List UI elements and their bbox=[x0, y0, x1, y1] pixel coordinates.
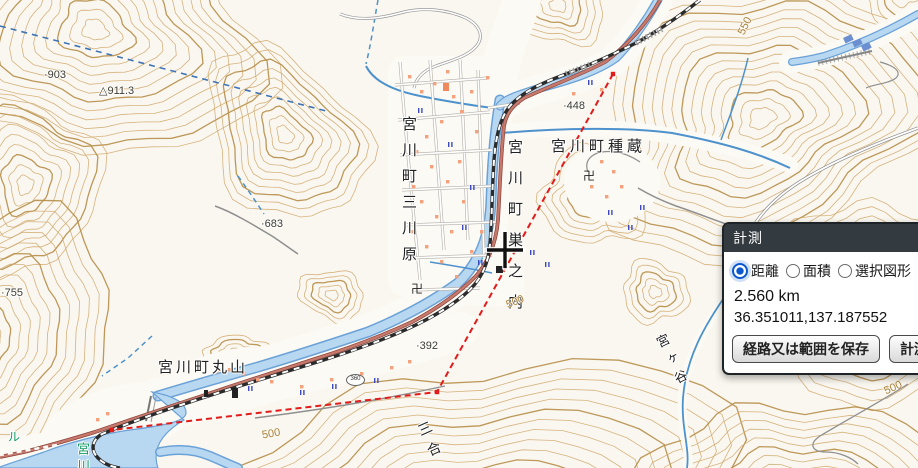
elevation-755: ·755 bbox=[1, 287, 23, 299]
elevation-392: ·392 bbox=[416, 340, 438, 352]
label-tunnel-name-fragment: ル bbox=[8, 431, 20, 443]
label-miyakawa-river: 宮川 bbox=[76, 442, 89, 468]
center-coordinates: 36.351011,137.187552 bbox=[734, 309, 918, 326]
radio-selected-shape-icon[interactable] bbox=[838, 264, 852, 278]
save-route-button[interactable]: 経路又は範囲を保存 bbox=[732, 335, 880, 363]
mode-distance[interactable]: 距離 bbox=[732, 261, 779, 281]
panel-title: 計測 bbox=[724, 224, 918, 252]
measured-distance-value: 2.560 km bbox=[734, 288, 918, 306]
temple-icon: 卍 bbox=[411, 280, 423, 297]
elevation-448: ·448 bbox=[563, 100, 585, 112]
mode-selected-shape-label: 選択図形 bbox=[855, 261, 911, 281]
measurement-panel: 計測 距離 面積 選択図形 2.56 bbox=[722, 222, 918, 375]
label-maruyama: 宮川町丸山 bbox=[158, 360, 248, 375]
map-application: 宮川町三川原 宮川町巣之内 宮川町種蔵 宮川町丸山 宮ヶ谷 三合 宮川 ル ·9… bbox=[0, 0, 918, 468]
mode-area-label: 面積 bbox=[803, 261, 831, 281]
mode-selected-shape[interactable]: 選択図形 bbox=[838, 261, 911, 281]
label-tanekura: 宮川町種蔵 bbox=[551, 139, 646, 154]
radio-distance-icon[interactable] bbox=[732, 263, 748, 279]
measured-values-button[interactable]: 計測値 bbox=[889, 335, 918, 363]
temple-icon: 卍 bbox=[583, 167, 595, 184]
route-number-badge: 360 bbox=[346, 374, 365, 386]
measure-mode-options: 距離 面積 選択図形 bbox=[732, 261, 918, 281]
elevation-903: ·903 bbox=[44, 69, 66, 81]
elevation-911-triangulation: △911.3 bbox=[99, 84, 134, 97]
elevation-683: ·683 bbox=[261, 218, 283, 230]
mode-area[interactable]: 面積 bbox=[786, 261, 831, 281]
radio-area-icon[interactable] bbox=[786, 264, 800, 278]
label-mikawahara: 宮川町三川原 bbox=[401, 116, 416, 272]
mode-distance-label: 距離 bbox=[751, 261, 779, 281]
